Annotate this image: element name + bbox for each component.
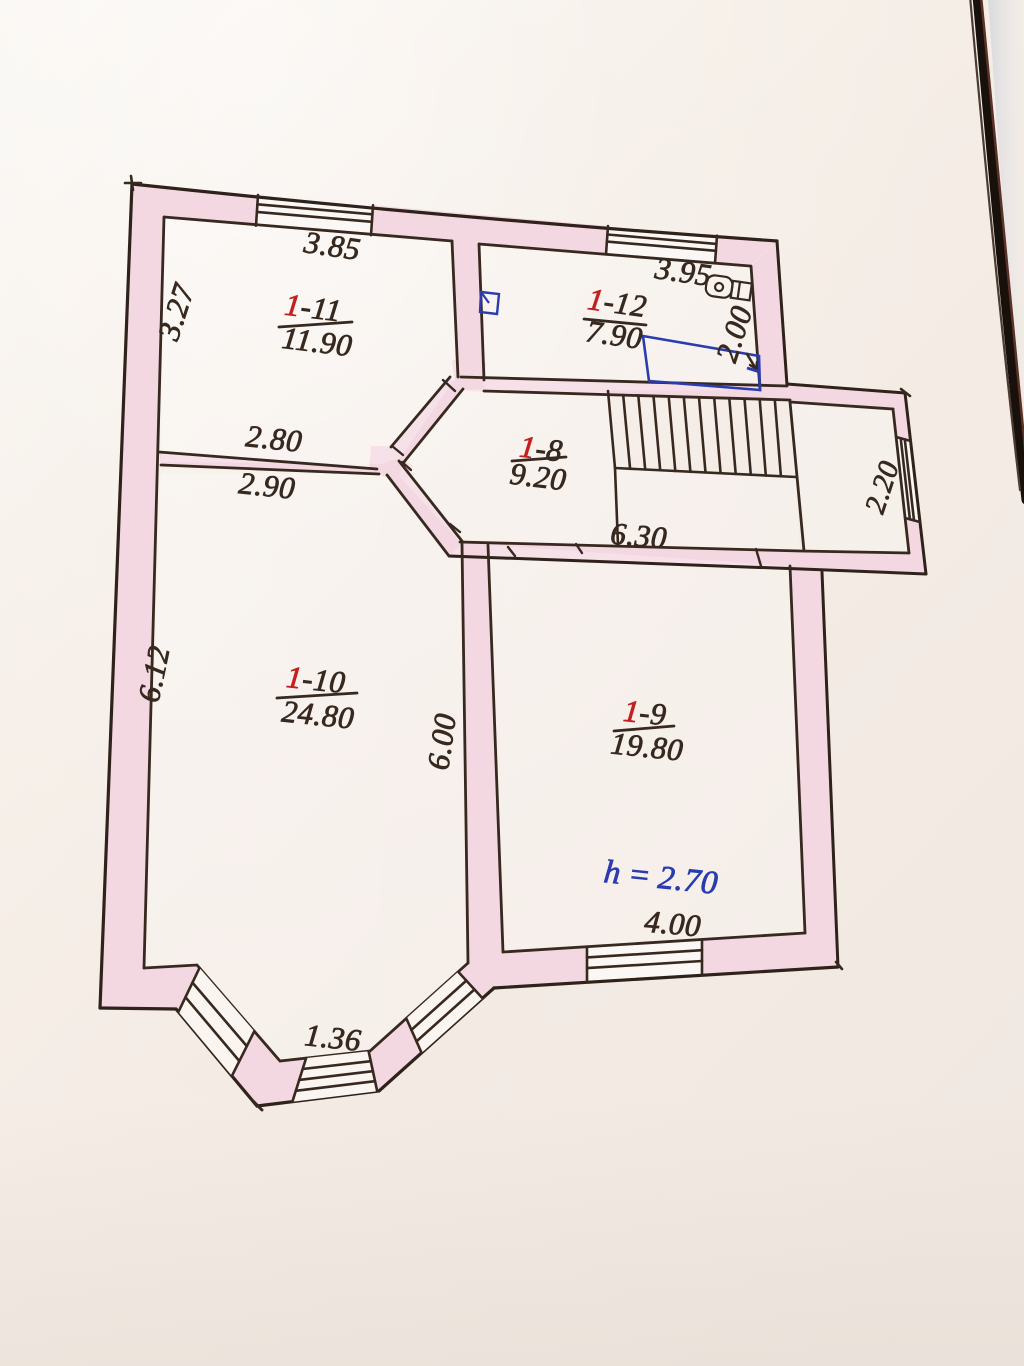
svg-text:6.30: 6.30 <box>609 516 668 556</box>
svg-text:1.36: 1.36 <box>303 1017 363 1058</box>
svg-text:2.90: 2.90 <box>237 465 297 506</box>
svg-text:2.80: 2.80 <box>244 418 304 459</box>
svg-text:9.20: 9.20 <box>508 456 568 498</box>
svg-text:4.00: 4.00 <box>643 904 702 944</box>
